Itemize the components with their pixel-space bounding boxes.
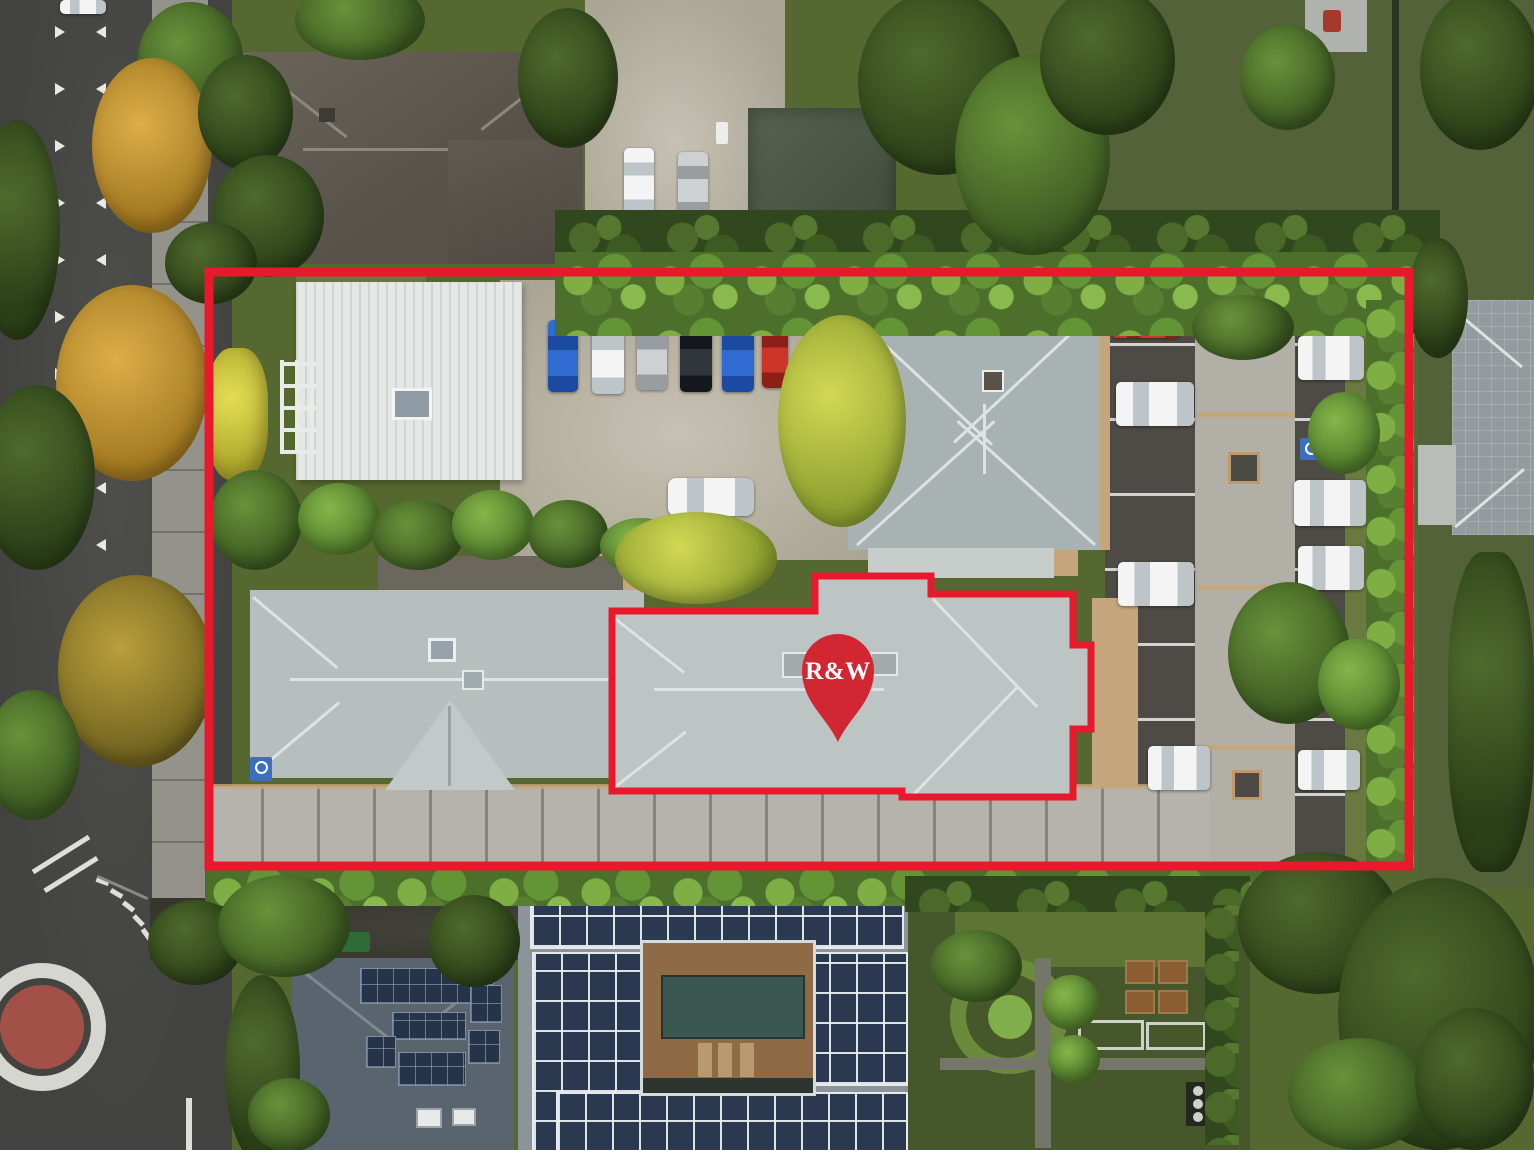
location-pin: R&W	[802, 634, 874, 742]
annotation-overlay: R&W	[0, 0, 1534, 1150]
property-boundary-outline	[209, 272, 1409, 866]
aerial-photo: R&W	[0, 0, 1534, 1150]
pin-label: R&W	[805, 658, 870, 685]
pin-shape	[802, 634, 874, 742]
